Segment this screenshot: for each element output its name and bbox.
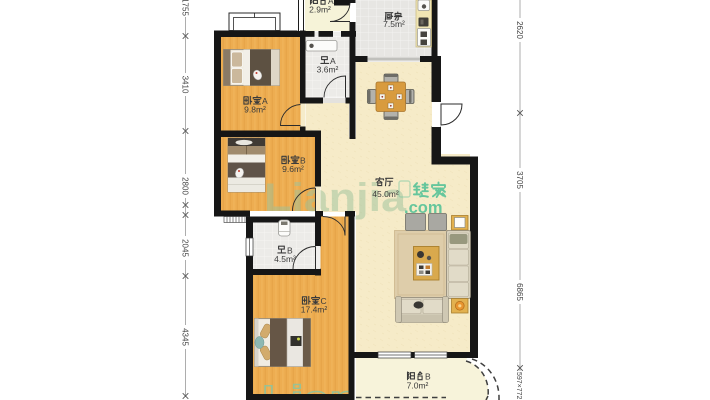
svg-text:2.9m²: 2.9m² — [309, 5, 331, 15]
svg-text:2800: 2800 — [181, 177, 190, 195]
svg-text:45.0m²: 45.0m² — [372, 189, 399, 199]
svg-text:597×772×2: 597×772×2 — [515, 372, 522, 400]
svg-text:7.5m²: 7.5m² — [383, 19, 405, 29]
svg-text:2045: 2045 — [181, 239, 190, 257]
svg-text:1755: 1755 — [181, 0, 190, 16]
svg-text:6865: 6865 — [515, 283, 524, 301]
svg-text:9.6m²: 9.6m² — [282, 164, 304, 174]
svg-text:4345: 4345 — [181, 328, 190, 346]
svg-text:4.5m²: 4.5m² — [274, 254, 296, 264]
svg-text:3410: 3410 — [181, 76, 190, 94]
svg-text:2620: 2620 — [515, 21, 524, 39]
svg-text:3705: 3705 — [515, 171, 524, 189]
svg-text:17.4m²: 17.4m² — [301, 305, 328, 315]
svg-text:9.8m²: 9.8m² — [244, 105, 266, 115]
svg-text:7.0m²: 7.0m² — [407, 381, 429, 391]
svg-text:3.6m²: 3.6m² — [317, 65, 339, 75]
